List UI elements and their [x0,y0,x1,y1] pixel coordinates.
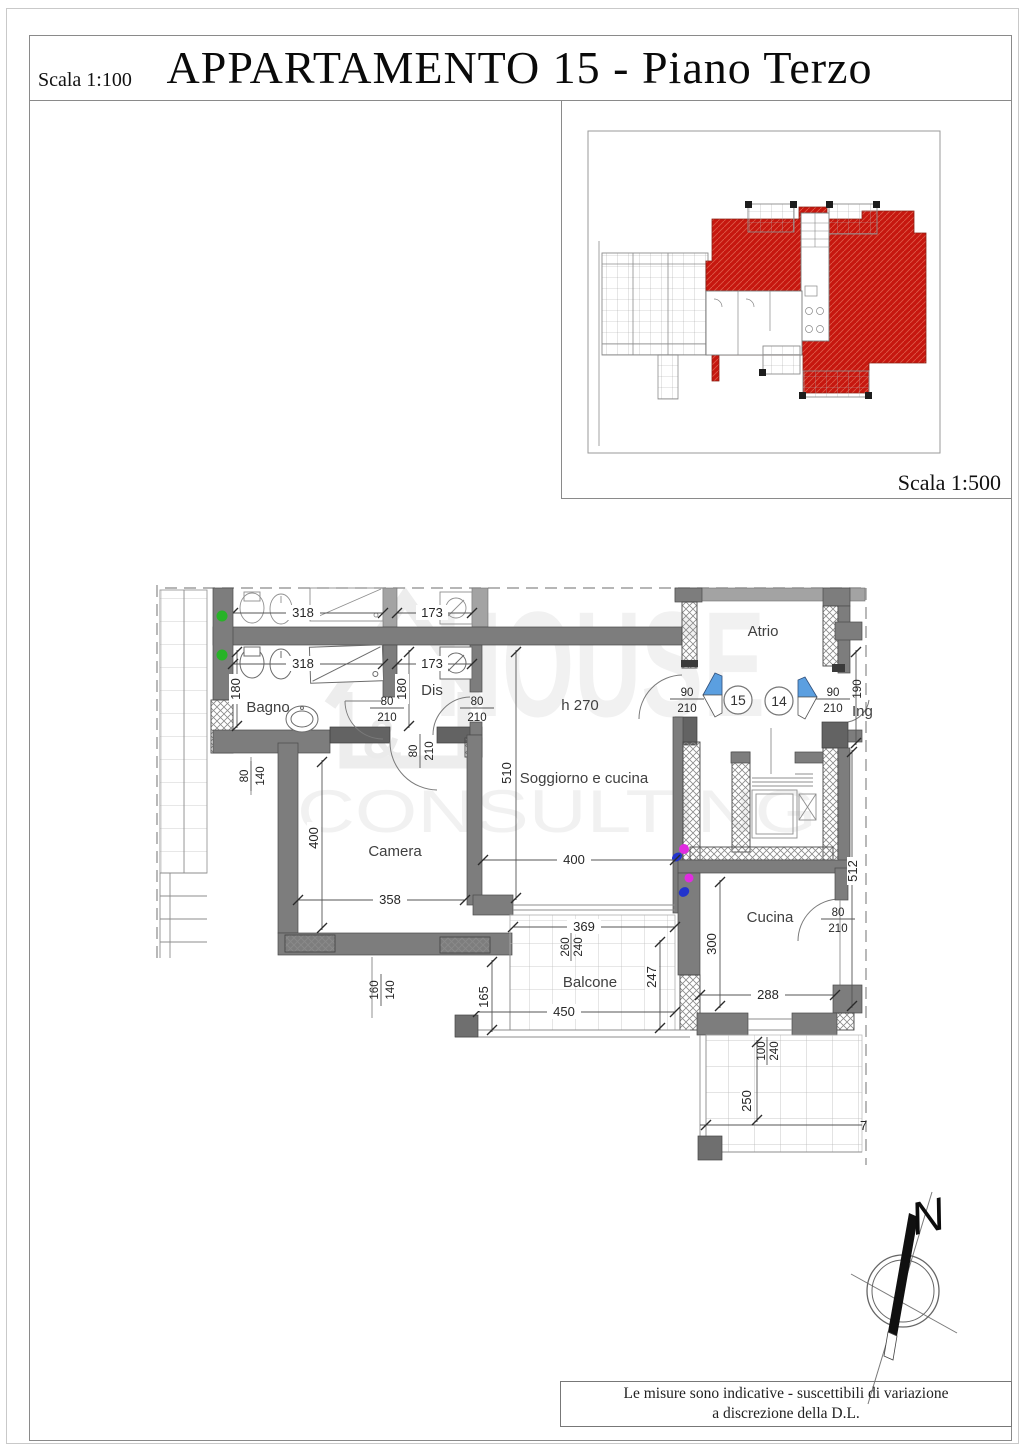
magenta-riser-dot [679,844,689,854]
window-height: 240 [573,937,585,956]
key-scale-label: Scala 1:500 [898,470,1001,496]
dim-balcone-right: 247 [644,966,659,988]
dim-bagno-width-upper: 318 [292,605,314,620]
key-plan-box: Scala 1:500 [561,100,1012,499]
room-cucina: Cucina [747,909,794,926]
dim-dis-width-upper: 173 [421,605,443,620]
door-height: 210 [828,923,847,935]
window-height: 140 [385,980,397,999]
window-width: 160 [369,980,381,999]
room-bagno: Bagno [246,699,289,716]
dim-cucina-height: 300 [704,933,719,955]
pillar [455,1015,478,1037]
room-soggiorno: Soggiorno e cucina [520,770,649,787]
dim-soggiorno-height: 510 [499,762,514,784]
green-riser-dot [217,650,228,661]
shower-icon [310,588,383,621]
dim-balcone2-height: 250 [739,1090,754,1112]
dim-balcone-top: 369 [573,919,595,934]
soggiorno-window [440,937,490,953]
toilet-icon [240,592,264,623]
window-width: 80 [239,770,251,783]
key-adjacent-unit [706,291,802,355]
window-height: 240 [769,1041,781,1060]
title-bar: Scala 1:100 APPARTAMENTO 15 - Piano Terz… [29,35,1010,101]
dim-balcone-left: 165 [476,986,491,1008]
dim-right-side: 512 [845,860,860,882]
dim-soggiorno-width: 400 [563,852,585,867]
disclaimer-line2: a discrezione della D.L. [561,1404,1011,1424]
pillar [698,1136,722,1160]
key-stairwell [801,213,829,341]
dim-dis-height: 180 [394,678,409,700]
dim-cut: 7 [860,1118,867,1133]
window-width: 260 [560,937,572,956]
toilet-icon [240,647,264,678]
unit-14-label: 14 [771,693,787,709]
key-plan-drawing [562,101,1011,495]
door-width: 80 [408,745,420,758]
green-riser-dot [217,611,228,622]
door-direction-icon [798,677,817,697]
unit-15-label: 15 [730,692,746,708]
magenta-riser-dot [685,874,694,883]
door-width: 80 [832,907,845,919]
room-camera: Camera [368,843,422,860]
dim-balcone-width: 450 [553,1004,575,1019]
dim-dis-width: 173 [421,656,443,671]
room-dis: Dis [421,682,443,699]
dim-camera-width: 358 [379,892,401,907]
door-height: 210 [823,703,842,715]
room-atrio: Atrio [748,623,779,640]
camera-window [285,935,335,952]
dim-bagno-width: 318 [292,656,314,671]
door-height: 210 [467,712,486,724]
door-width: 90 [681,687,694,699]
window-height: 140 [255,766,267,785]
page-title: APPARTAMENTO 15 - Piano Terzo [29,41,1010,94]
door-width: 80 [381,696,394,708]
entrance-label: Ing [852,703,873,720]
dim-bagno-height: 180 [228,678,243,700]
window-width: 100 [756,1041,768,1060]
dim-cucina-width: 288 [757,987,779,1002]
room-balcone: Balcone [563,974,617,991]
door-height: 210 [424,741,436,760]
dim-camera-height: 400 [306,827,321,849]
plan-sheet: & HOUSE CONSULTING [0,0,1024,1449]
door-width: 80 [471,696,484,708]
ceiling-height-note: h 270 [561,697,599,714]
disclaimer-line1: Le misure sono indicative - suscettibili… [561,1384,1011,1404]
disclaimer-box: Le misure sono indicative - suscettibili… [560,1381,1012,1427]
washbasin-icon [286,706,318,732]
dim-right-top: 190 [852,679,864,698]
door-height: 210 [377,712,396,724]
north-compass-icon: N [851,1187,957,1404]
door-height: 210 [677,703,696,715]
door-width: 90 [827,687,840,699]
adjacent-terrace [160,590,207,958]
